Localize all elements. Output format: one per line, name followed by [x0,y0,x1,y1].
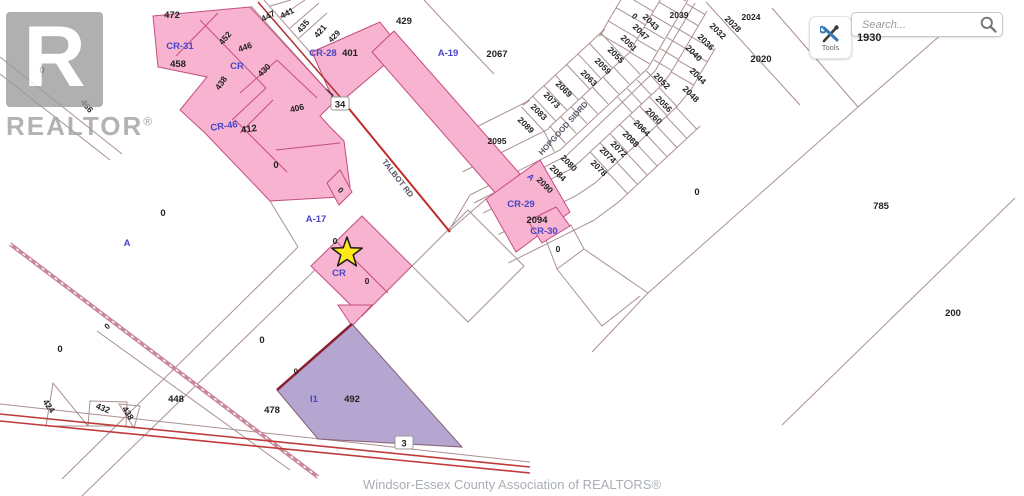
lot-line [642,175,648,180]
parcel-label: 2094 [526,215,548,226]
lot-line [593,35,599,40]
lot-line [480,122,487,126]
attribution-text: Windsor-Essex County Association of REAL… [0,477,1024,492]
parcel-label: 2024 [742,12,761,22]
lot-line [558,67,564,72]
lot-line [534,89,540,94]
lot-line [620,0,624,2]
purple-parcel-i1[interactable] [277,324,462,447]
lot-line [647,135,667,157]
lot-line [566,231,573,235]
lot-line [676,107,696,129]
parcel-label: 0 [57,344,62,355]
lot-line [594,202,618,220]
parcel-label: 472 [164,10,180,21]
parcel-label: 0 [365,276,370,286]
lot-line [614,67,630,84]
lot-line [637,144,657,166]
lot-line [534,132,541,136]
parcel-label: I1 [310,394,319,405]
parcel-label: CR-29 [507,199,534,210]
lot-line [575,51,581,56]
lot-line [581,45,587,50]
parcel-label: 0 [556,244,561,254]
lot-line [592,87,608,104]
lot-line [621,118,627,123]
lot-line [587,220,594,224]
lot-line [604,134,610,139]
lot-number-label: 1930 [857,32,881,44]
parcel-label: 424 [41,397,57,415]
lot-line [508,107,515,111]
parcel-label: 0 [630,12,640,22]
parcel-label: 785 [873,201,890,212]
lot-line [584,89,590,94]
parcel-label: 3 [401,439,406,450]
parcel-label: 2051 [619,33,640,54]
lot-line [703,62,707,69]
lot-line [637,40,657,52]
lot-line [624,57,640,74]
lot-line [610,128,616,133]
parcel-label: 200 [945,308,961,319]
parcel-label: 2020 [750,54,771,65]
parcel-label: 0 [333,236,338,246]
parcel-label: 2063 [579,68,600,89]
lot-line [501,111,508,115]
lot-line [703,11,707,18]
lot-line [618,197,624,202]
parcel-label: CR [332,268,346,279]
lot-line [558,234,565,238]
parcel-label: 2048 [681,84,702,105]
railway-line [10,244,318,477]
parcel-label: 2067 [486,49,507,60]
lot-line [551,238,558,242]
lot-line [513,143,520,147]
parcel-map[interactable]: 0466472CR-31458452446CR43843044744143542… [0,0,1024,496]
lot-line [630,52,650,64]
parcel-label: CR-31 [166,41,194,52]
lot-line [671,148,677,153]
lot-line [580,156,586,161]
parcel-label: 448 [168,394,184,405]
lot-line [659,0,663,2]
parcel-label: 492 [344,394,360,405]
survey-lot-fan [451,0,715,263]
parcel-label: 0 [273,160,278,171]
lot-line [612,9,616,16]
lot-line [615,123,621,128]
map-labels: 0466472CR-31458452446CR43843044744143542… [39,5,961,449]
lot-line [577,183,595,195]
lot-line [695,25,699,32]
lot-line [630,186,636,191]
parcel-label: A-17 [306,214,327,225]
lot-line [463,168,470,172]
lot-line [570,195,577,199]
lot-line [527,136,534,140]
parcel-label: 34 [335,100,346,111]
parcel-label: 432 [95,401,112,416]
parcel-label: 478 [264,405,280,416]
lot-line [689,131,695,136]
lot-line [603,77,619,94]
lot-line [523,252,530,256]
lot-line [617,163,637,185]
lot-line [607,172,627,194]
parcel-label: 2078 [589,158,610,179]
lot-line [549,122,555,127]
parcel-label: 0 [259,335,264,346]
lot-line [570,56,576,61]
lot-line [537,245,544,249]
lot-line [616,2,620,9]
tools-button[interactable]: Tools [809,16,852,59]
tools-button-label: Tools [822,43,840,52]
parcel-label: A-19 [438,48,459,59]
lot-line [648,169,654,174]
lot-line [604,22,608,29]
lot-line [627,153,647,175]
road-label: TALBOT RD [380,158,415,200]
parcel-boundaries [0,0,1015,496]
lot-line [624,0,653,12]
lot-line [508,259,515,263]
lot-line [483,209,490,213]
lot-line [494,115,501,119]
parcel-label: 466 [79,97,96,115]
parcel-label: 2040 [684,43,705,64]
lot-line [650,90,656,95]
parcel-label: 2083 [529,102,550,123]
lot-line [636,180,642,185]
parcel-label: CR [230,61,244,72]
lot-line [707,55,711,62]
lot-line [530,249,537,253]
parcel-label: 0 [694,187,699,198]
parcel-label: 0 [160,208,165,219]
lot-line [592,145,598,150]
parcel-label: CR-28 [309,48,336,59]
lot-line [666,0,686,1]
parcel-label: 401 [342,48,359,59]
parcel-label: 0 [39,65,44,76]
parcel-label: 412 [240,123,257,136]
lot-line [546,78,552,83]
parcel-label: 458 [170,59,186,70]
lot-line [657,126,677,148]
parcel-label: A [124,238,131,249]
lot-line [595,177,601,182]
lot-line [677,142,683,147]
road-label: HOPGOOD SIDRD [537,100,590,157]
tools-icon [820,23,842,45]
lot-line [561,111,567,116]
lot-line [633,107,639,112]
parcel-label: 2052 [652,71,673,92]
map-screen: 0466472CR-31458452446CR43843044744143542… [0,0,1024,496]
lot-line [506,147,513,151]
parcel-label: CR-30 [530,226,557,237]
lot-line [520,140,527,144]
parcel-label: 435 [295,17,312,35]
lot-line [666,116,686,138]
parcel-label: 2069 [554,79,575,100]
lot-line [679,53,683,60]
parcel-label: 2039 [670,10,689,20]
lot-line [487,118,494,122]
lot-line [580,224,587,228]
lot-line [655,2,659,9]
search-icon[interactable] [979,15,998,34]
lot-line [699,18,703,25]
parcel-label: 429 [396,16,412,27]
parcel-label: 2095 [488,136,507,146]
lot-line [659,159,665,164]
parcel-small-triangle [338,305,372,326]
parcel-label: 2089 [516,115,537,136]
lot-line [515,256,522,260]
parcel-label: 2073 [542,90,563,111]
